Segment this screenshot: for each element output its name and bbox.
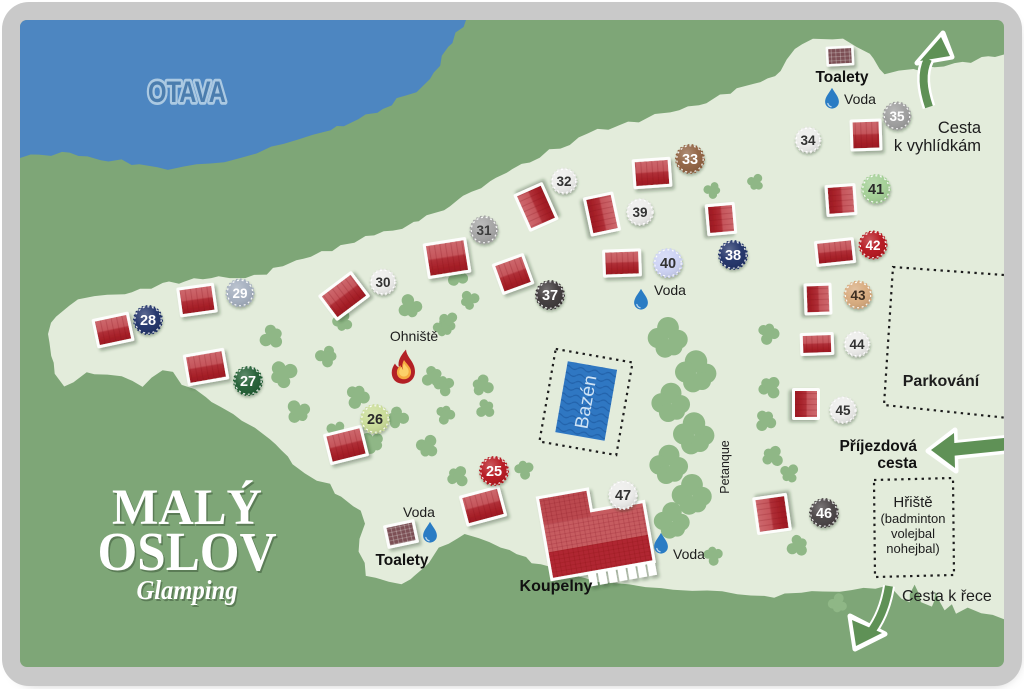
svg-text:25: 25 <box>486 464 502 480</box>
svg-text:35: 35 <box>889 109 905 124</box>
svg-text:Petanque: Petanque <box>718 440 732 494</box>
svg-text:Cesta k řece: Cesta k řece <box>902 588 992 605</box>
svg-text:nohejbal): nohejbal) <box>886 541 940 556</box>
svg-text:41: 41 <box>868 182 884 198</box>
svg-text:33: 33 <box>682 152 698 168</box>
svg-text:Voda: Voda <box>654 282 686 298</box>
svg-text:39: 39 <box>632 205 647 220</box>
svg-text:27: 27 <box>240 374 256 390</box>
svg-text:k vyhlídkám: k vyhlídkám <box>894 137 981 155</box>
svg-text:28: 28 <box>140 313 156 329</box>
svg-text:43: 43 <box>850 288 866 303</box>
svg-text:26: 26 <box>367 412 383 428</box>
svg-text:Parkování: Parkování <box>903 373 980 390</box>
svg-text:29: 29 <box>232 286 247 301</box>
svg-text:30: 30 <box>375 275 390 290</box>
svg-text:47: 47 <box>615 488 631 504</box>
svg-text:cesta: cesta <box>877 455 917 472</box>
svg-text:volejbal: volejbal <box>891 526 935 541</box>
svg-text:42: 42 <box>865 238 880 253</box>
svg-text:34: 34 <box>800 133 816 148</box>
svg-text:Voda: Voda <box>673 546 705 562</box>
svg-text:(badminton: (badminton <box>880 511 945 526</box>
svg-text:31: 31 <box>476 223 492 238</box>
svg-text:32: 32 <box>556 174 571 189</box>
svg-text:45: 45 <box>835 403 851 418</box>
svg-text:Koupelny: Koupelny <box>520 578 593 595</box>
svg-text:38: 38 <box>725 248 741 264</box>
svg-text:Toalety: Toalety <box>815 69 868 86</box>
svg-text:OSLOV: OSLOV <box>98 521 277 582</box>
svg-text:Ohniště: Ohniště <box>390 328 438 344</box>
svg-text:Voda: Voda <box>403 504 435 520</box>
svg-text:44: 44 <box>849 337 865 352</box>
svg-text:Cesta: Cesta <box>938 119 982 137</box>
svg-text:Toalety: Toalety <box>375 552 428 569</box>
svg-text:OTAVA: OTAVA <box>148 76 226 109</box>
svg-text:Voda: Voda <box>844 91 876 107</box>
svg-text:Příjezdová: Příjezdová <box>839 438 917 455</box>
svg-text:46: 46 <box>816 506 832 522</box>
svg-text:Glamping: Glamping <box>137 575 238 605</box>
svg-text:Hřiště: Hřiště <box>893 494 932 511</box>
svg-text:37: 37 <box>542 288 558 304</box>
svg-text:40: 40 <box>660 256 676 272</box>
